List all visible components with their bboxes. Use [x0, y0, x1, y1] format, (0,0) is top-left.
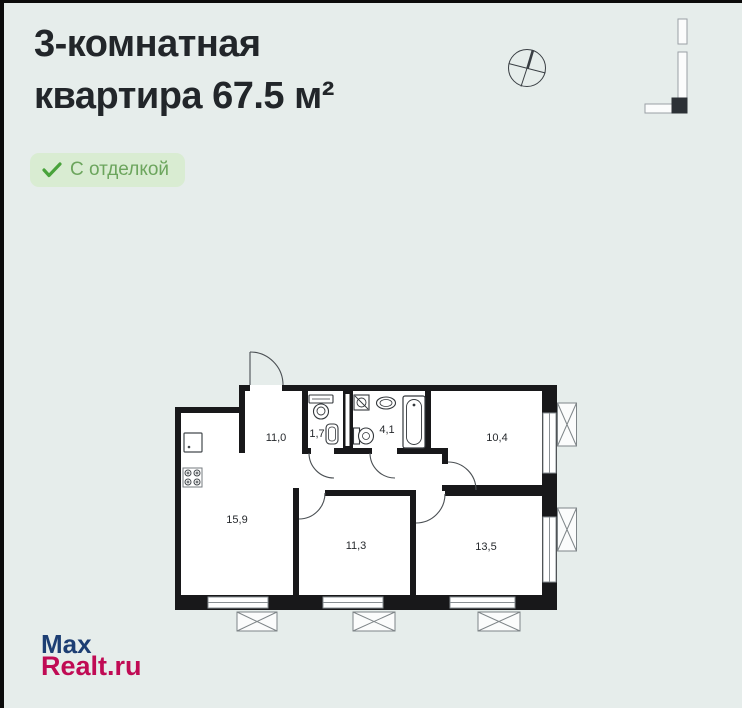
window	[208, 597, 515, 608]
site-watermark: Max Realt.ru	[41, 633, 142, 677]
bathtub-icon	[403, 396, 425, 448]
floor-plan	[0, 0, 742, 708]
building-position-icon	[645, 19, 687, 113]
room-area-label-bedroom-right: 13,5	[475, 541, 496, 553]
watermark-line-2: Realt.ru	[41, 655, 142, 677]
room-area-label-bedroom-middle: 11,3	[346, 540, 367, 552]
washing-machine-icon	[354, 395, 369, 410]
kitchen-sink-icon	[184, 433, 202, 452]
bath-sink-icon	[377, 397, 396, 409]
pedestal-sink-icon	[354, 428, 374, 444]
room-area-label-bedroom-top: 10,4	[486, 432, 507, 444]
room-area-label-kitchen-living: 15,9	[226, 514, 247, 526]
wc-sink-icon	[326, 424, 338, 444]
apartment-interior	[175, 385, 557, 610]
entrance-door-arc	[250, 352, 283, 385]
room-area-label-wc: 1,7	[309, 428, 324, 440]
duct-shaft	[346, 394, 350, 446]
room-area-label-bathroom: 4,1	[379, 424, 394, 436]
room-area-label-hallway: 11,0	[266, 432, 287, 444]
compass-icon	[509, 50, 546, 87]
